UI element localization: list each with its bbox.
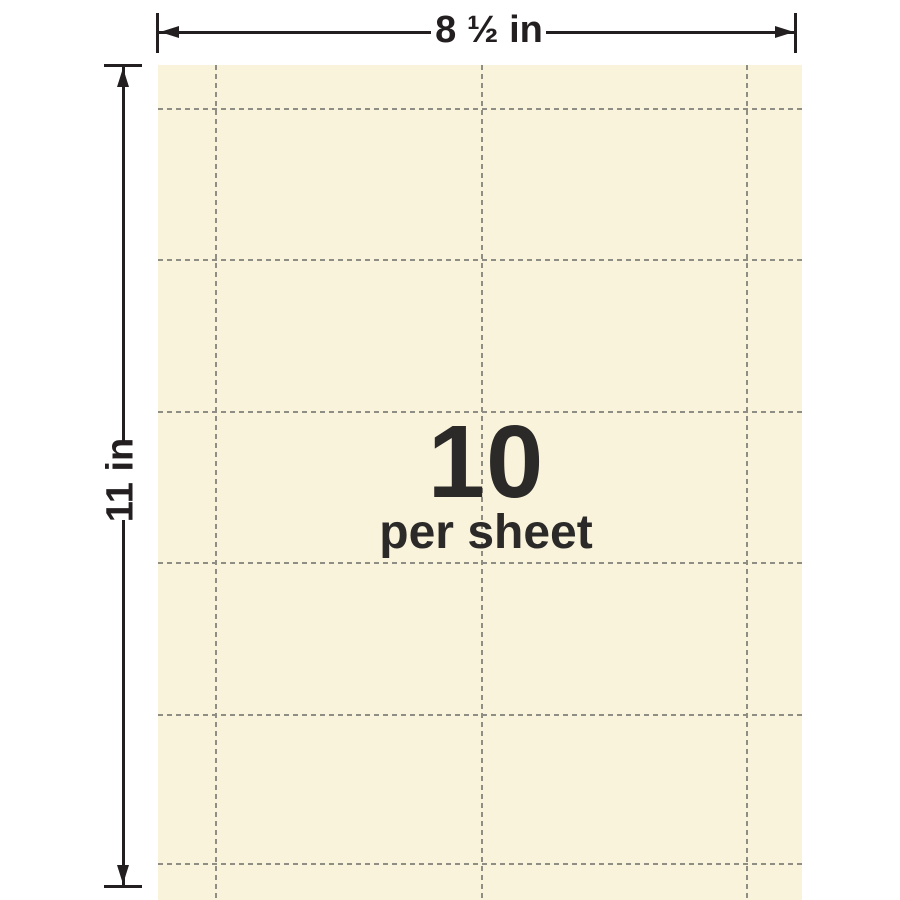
arrow-left-icon bbox=[160, 26, 179, 38]
arrow-up-icon bbox=[117, 68, 129, 87]
height-dimension-label: 11 in bbox=[100, 438, 143, 523]
cut-line-vertical bbox=[215, 65, 217, 900]
width-dimension-tick-left bbox=[156, 13, 159, 53]
width-dimension-line-left bbox=[159, 31, 431, 34]
width-dimension-line-right bbox=[546, 31, 796, 34]
height-dimension-line-top bbox=[122, 66, 125, 442]
arrow-right-icon bbox=[775, 26, 794, 38]
sheet-count-caption: per sheet bbox=[379, 509, 592, 557]
width-dimension-tick-right bbox=[794, 13, 797, 53]
height-dimension-tick-bottom bbox=[104, 885, 142, 888]
per-sheet-label-group: 10 per sheet bbox=[379, 420, 592, 557]
cut-line-horizontal bbox=[158, 863, 802, 865]
cut-line-vertical bbox=[746, 65, 748, 900]
width-dimension-label: 8 ½ in bbox=[430, 9, 548, 52]
cut-line-horizontal bbox=[158, 562, 802, 564]
cut-line-horizontal bbox=[158, 259, 802, 261]
height-dimension-line-bottom bbox=[122, 520, 125, 887]
cut-line-horizontal bbox=[158, 108, 802, 110]
sheet-count: 10 bbox=[379, 420, 592, 504]
cut-line-horizontal bbox=[158, 714, 802, 716]
height-dimension-tick-top bbox=[104, 64, 142, 67]
arrow-down-icon bbox=[117, 865, 129, 884]
product-diagram: 10 per sheet 8 ½ in 11 in bbox=[0, 0, 900, 900]
paper-sheet: 10 per sheet bbox=[158, 65, 802, 900]
